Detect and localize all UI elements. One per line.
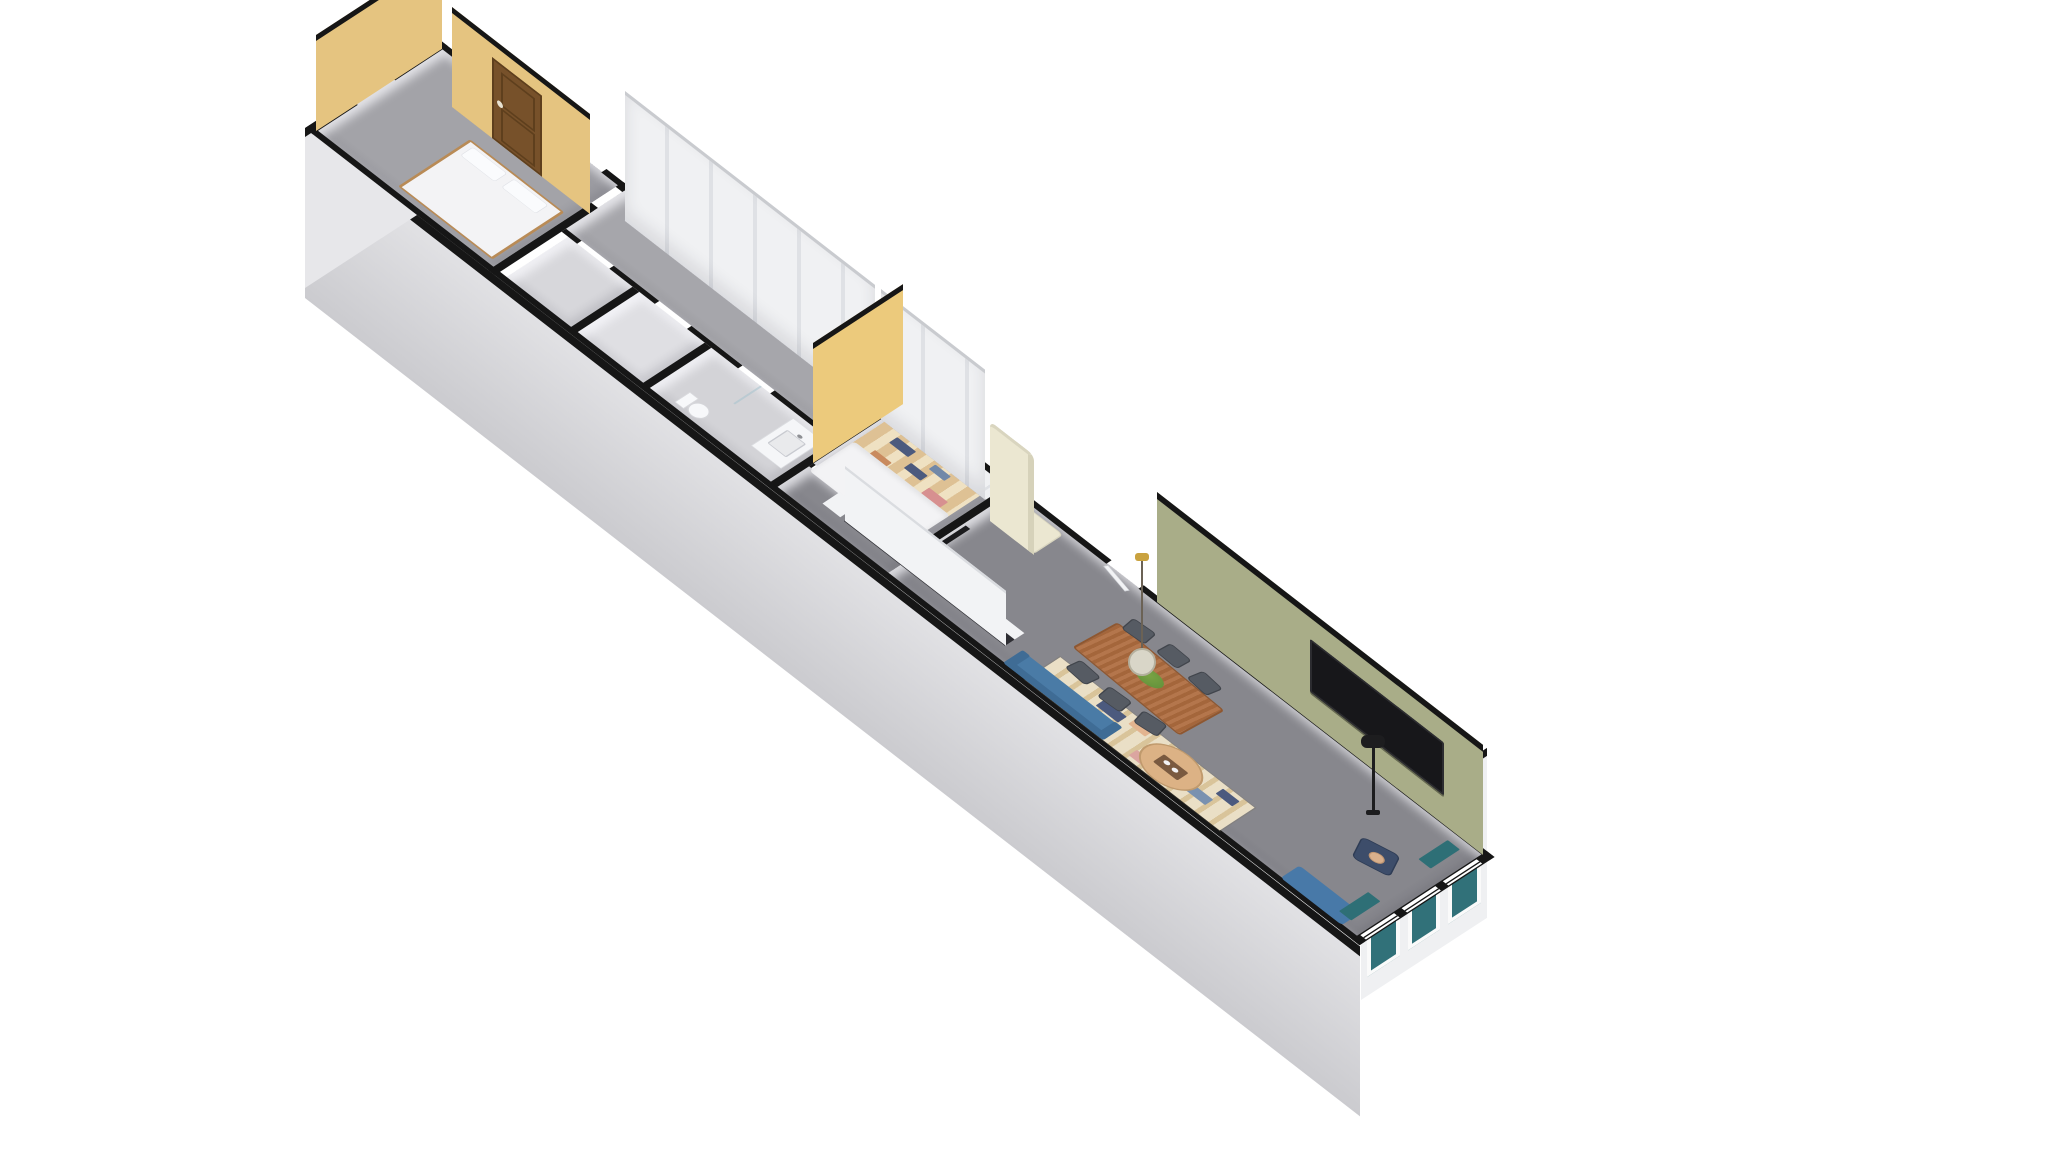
floor-lamp-shade [1361,735,1385,748]
pendant-lamp-cord [1141,560,1143,656]
floor-lamp-base [1366,810,1380,815]
apartment-plan [305,40,1495,945]
pendant-lamp-cap [1135,553,1149,561]
floor-lamp-stem [1372,745,1375,813]
floorplan-canvas [0,0,2048,1152]
quilt-patch-navy-2 [904,463,928,481]
pendant-lamp-shade [1128,648,1156,676]
door-handle [497,98,503,109]
